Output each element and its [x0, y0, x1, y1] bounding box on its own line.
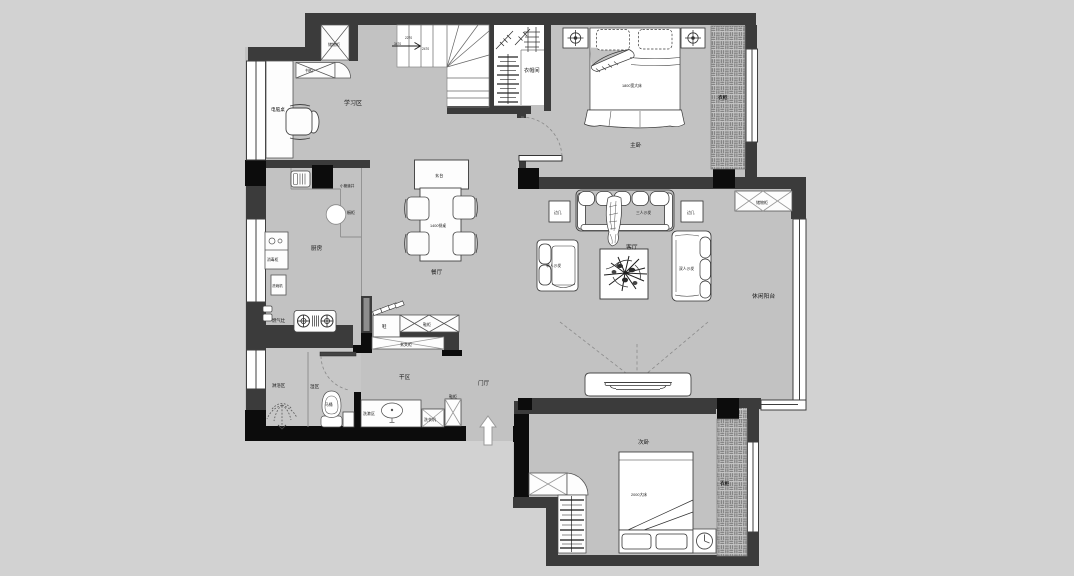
svg-text:门厅: 门厅 — [478, 379, 490, 387]
svg-text:书柜: 书柜 — [305, 67, 313, 73]
svg-text:储物柜: 储物柜 — [756, 199, 768, 205]
svg-text:2470: 2470 — [422, 47, 429, 51]
svg-text:休闲阳台: 休闲阳台 — [752, 292, 775, 300]
svg-text:干区: 干区 — [399, 374, 411, 381]
svg-text:消毒柜: 消毒柜 — [267, 257, 279, 262]
svg-text:橱柜: 橱柜 — [347, 209, 355, 215]
svg-text:客厅: 客厅 — [626, 243, 638, 251]
svg-text:1800宽大床: 1800宽大床 — [622, 83, 642, 88]
svg-text:鞋柜: 鞋柜 — [449, 393, 457, 399]
svg-text:衣柜: 衣柜 — [720, 480, 730, 487]
svg-text:主卧: 主卧 — [630, 141, 642, 149]
svg-text:洗碗机: 洗碗机 — [272, 283, 283, 288]
svg-text:洗漱区: 洗漱区 — [363, 410, 375, 416]
svg-text:厨房: 厨房 — [311, 244, 323, 252]
svg-text:1400餐桌: 1400餐桌 — [430, 223, 446, 228]
svg-text:湿区: 湿区 — [310, 383, 320, 390]
svg-text:玄关柜: 玄关柜 — [400, 341, 412, 347]
svg-text:三人沙发: 三人沙发 — [636, 210, 651, 215]
svg-text:玄台: 玄台 — [435, 172, 443, 179]
svg-text:次卧: 次卧 — [638, 438, 650, 446]
svg-text:单人沙发: 单人沙发 — [546, 263, 561, 268]
svg-text:燃气灶: 燃气灶 — [272, 317, 286, 324]
svg-text:学习区: 学习区 — [344, 99, 362, 107]
svg-text:3470: 3470 — [394, 42, 401, 46]
svg-text:边几: 边几 — [687, 210, 695, 215]
svg-text:边几: 边几 — [554, 210, 562, 215]
svg-text:储物柜: 储物柜 — [328, 41, 340, 47]
svg-text:衣柜: 衣柜 — [718, 94, 728, 101]
svg-text:鞋柜: 鞋柜 — [423, 321, 431, 327]
svg-text:小管道井: 小管道井 — [340, 183, 355, 188]
svg-text:洗衣机: 洗衣机 — [424, 416, 436, 422]
svg-text:2270: 2270 — [405, 36, 412, 40]
svg-text:2000大床: 2000大床 — [631, 492, 647, 497]
svg-text:马桶: 马桶 — [325, 402, 333, 407]
svg-text:淋浴区: 淋浴区 — [272, 382, 286, 389]
svg-text:餐厅: 餐厅 — [431, 268, 443, 276]
svg-text:双人沙发: 双人沙发 — [679, 266, 694, 271]
svg-text:电脑桌: 电脑桌 — [271, 106, 285, 113]
svg-text:鞋: 鞋 — [382, 323, 387, 330]
svg-text:衣帽间: 衣帽间 — [524, 66, 540, 74]
